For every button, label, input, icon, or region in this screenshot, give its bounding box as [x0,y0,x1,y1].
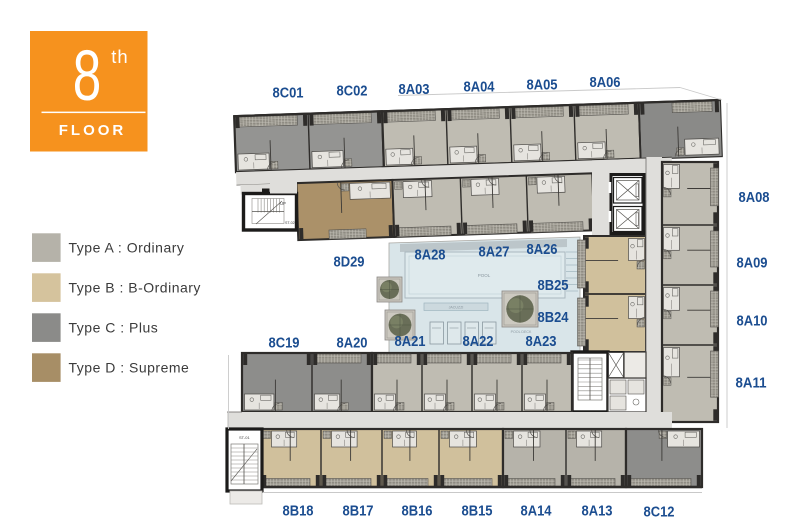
svg-text:8A27: 8A27 [479,243,510,260]
svg-text:8A22: 8A22 [463,333,494,350]
svg-text:8A11: 8A11 [736,374,767,391]
svg-text:8A05: 8A05 [527,76,558,93]
svg-text:8A28: 8A28 [415,246,446,263]
svg-text:8B16: 8B16 [402,502,433,519]
svg-text:Type A : Ordinary: Type A : Ordinary [69,240,185,256]
svg-text:8D29: 8D29 [334,253,365,270]
svg-text:8A13: 8A13 [582,502,613,519]
svg-text:Type D : Supreme: Type D : Supreme [69,360,190,376]
svg-text:8C12: 8C12 [644,503,675,520]
svg-text:Type C : Plus: Type C : Plus [69,320,159,336]
svg-text:8A10: 8A10 [737,312,768,329]
svg-text:JACUZZI: JACUZZI [449,306,464,310]
svg-text:8C02: 8C02 [337,82,368,99]
svg-text:8: 8 [73,37,102,116]
svg-text:8C01: 8C01 [273,84,304,101]
svg-text:8A21: 8A21 [395,333,426,350]
svg-text:Type B : B-Ordinary: Type B : B-Ordinary [69,280,201,296]
svg-text:8A26: 8A26 [527,241,558,258]
svg-text:8B18: 8B18 [283,502,314,519]
svg-text:8A20: 8A20 [337,334,368,351]
svg-text:8B15: 8B15 [462,502,493,519]
svg-text:8A23: 8A23 [526,333,557,350]
svg-text:8A09: 8A09 [737,254,768,271]
svg-text:8A03: 8A03 [399,81,430,98]
svg-text:8C19: 8C19 [269,334,300,351]
svg-text:UP: UP [280,201,286,206]
svg-text:8B25: 8B25 [538,277,569,294]
svg-text:8A08: 8A08 [739,189,770,206]
svg-text:POOL: POOL [478,273,491,278]
svg-text:8B17: 8B17 [343,502,374,519]
svg-text:th: th [111,46,128,67]
svg-text:ST-01: ST-01 [239,435,250,440]
svg-text:8A04: 8A04 [464,78,495,95]
svg-text:8A14: 8A14 [521,502,552,519]
svg-text:8B24: 8B24 [538,309,569,326]
svg-text:ST-02: ST-02 [285,221,295,225]
svg-text:FLOOR: FLOOR [59,122,127,139]
svg-text:8A06: 8A06 [590,74,621,91]
